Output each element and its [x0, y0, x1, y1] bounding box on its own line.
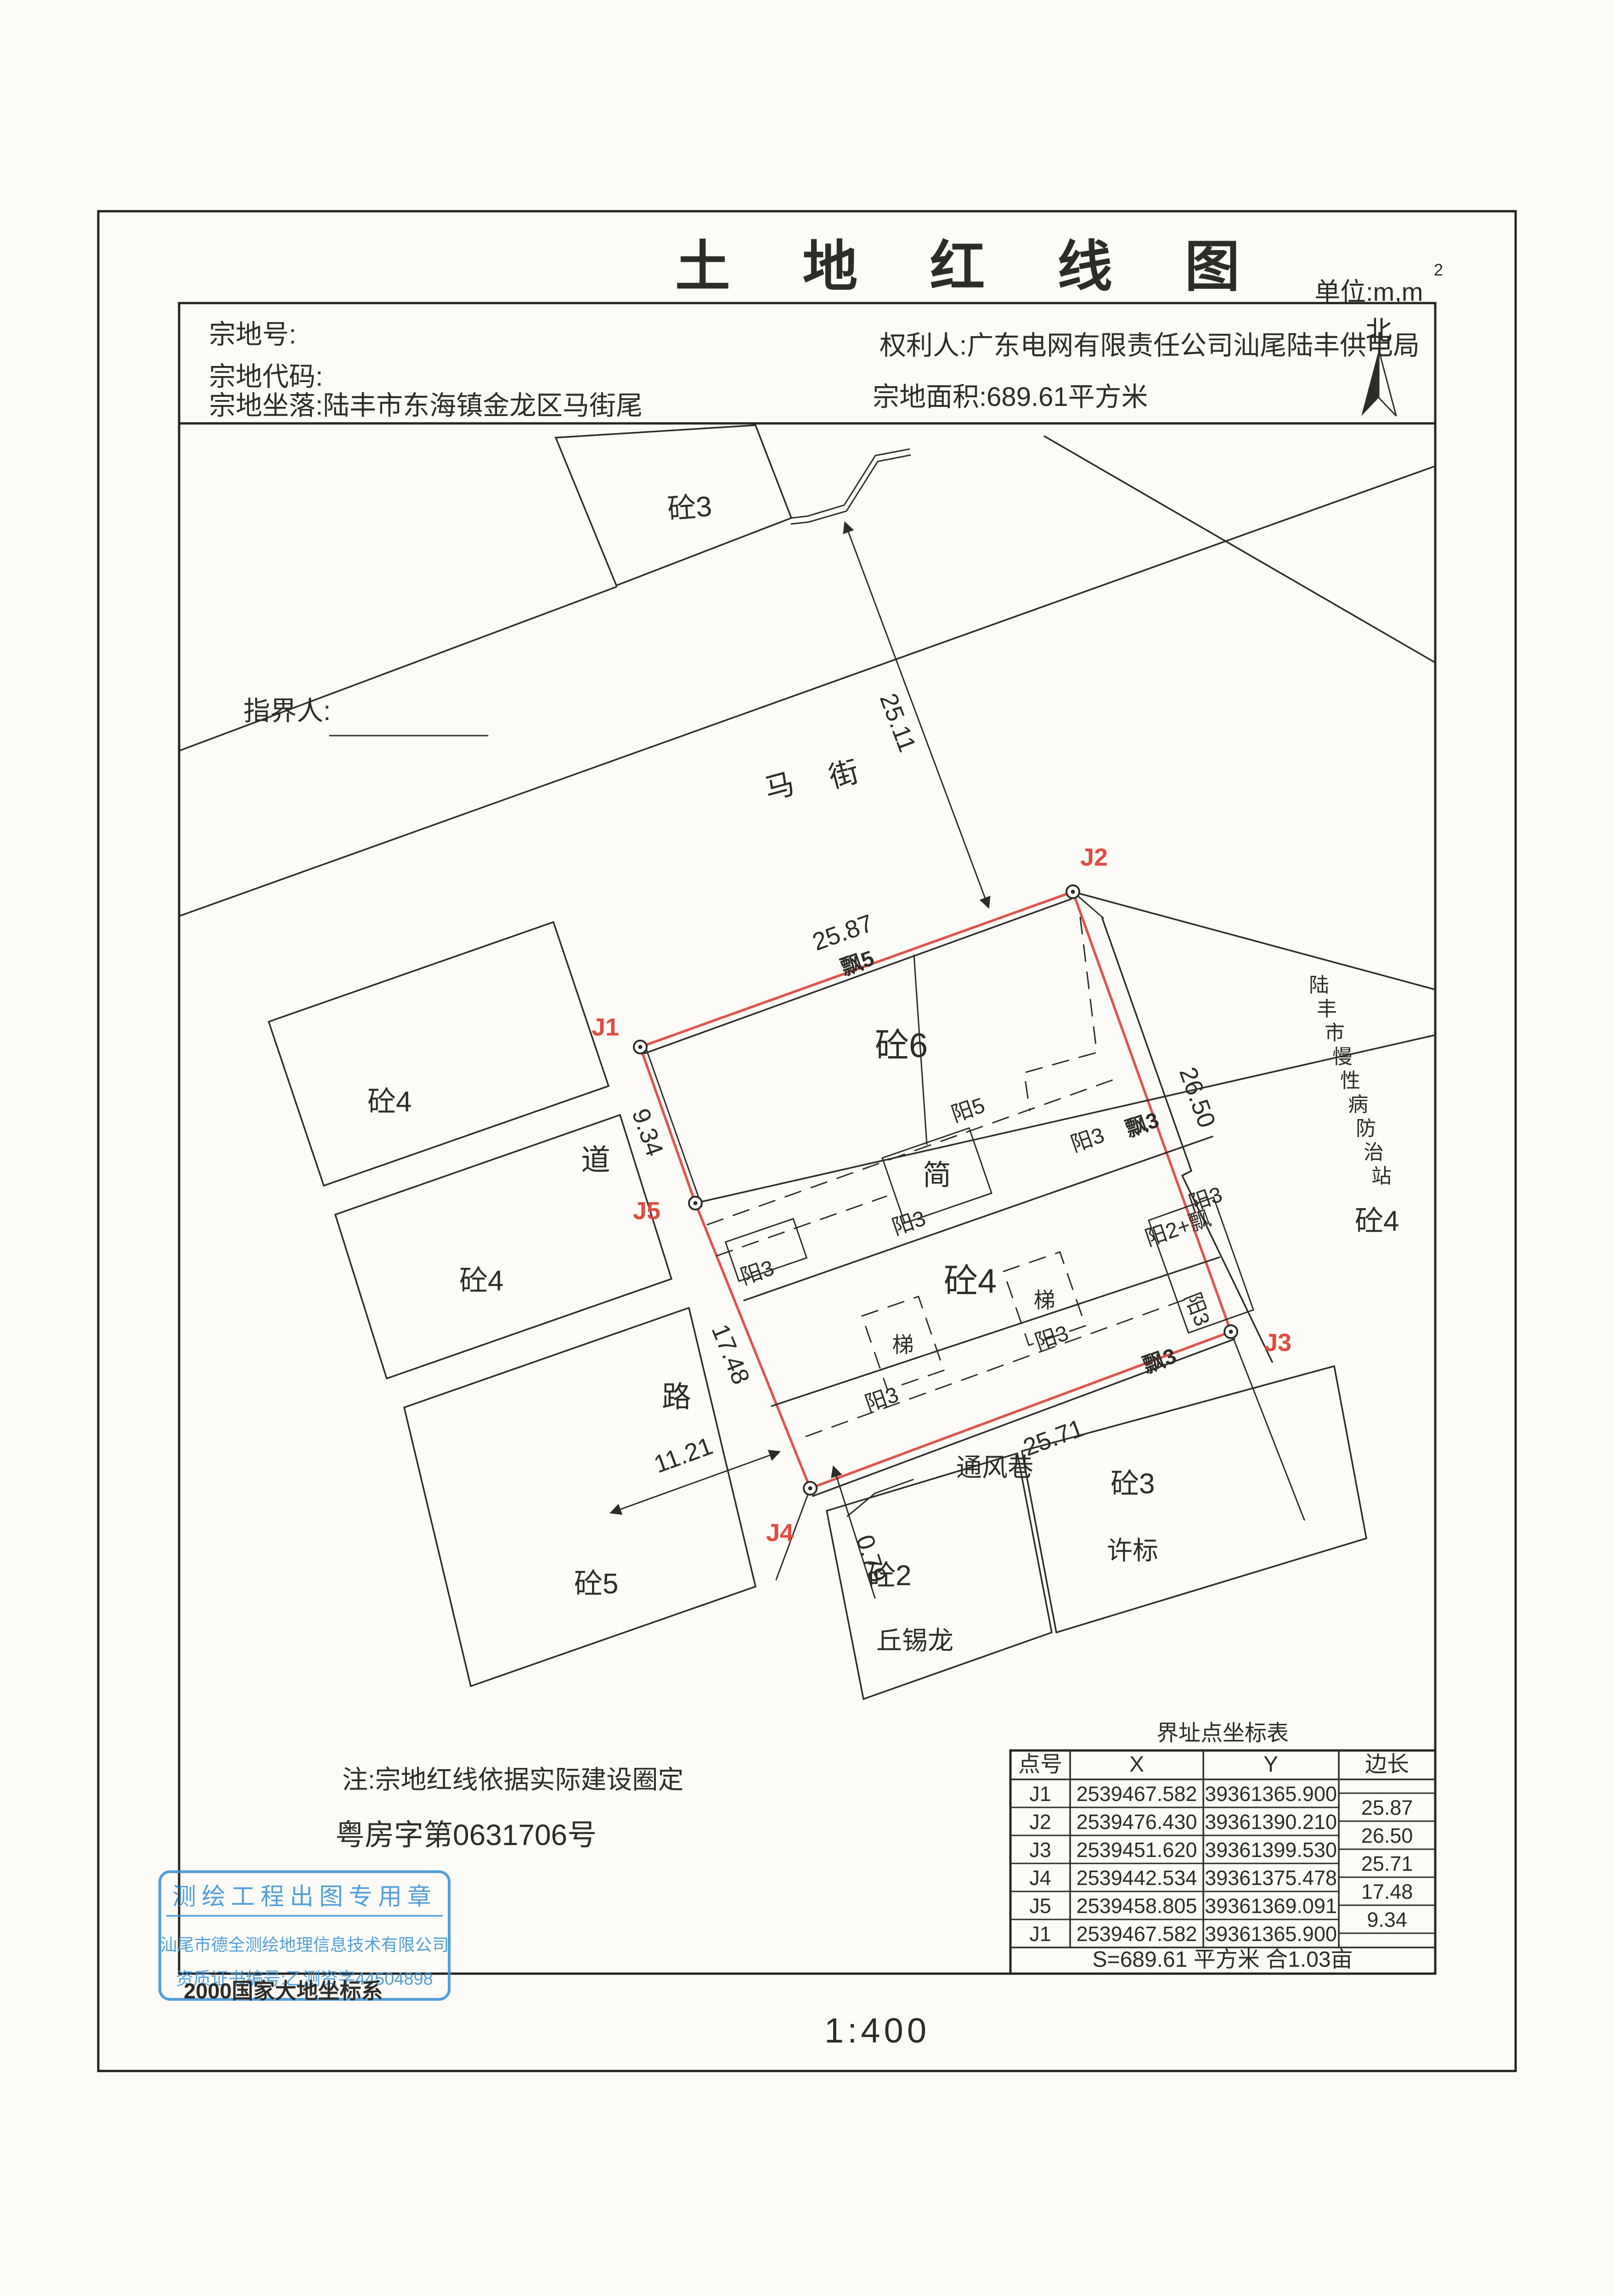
- building-left1-label: 砼4: [367, 1086, 412, 1118]
- edge-len-2: 25.71: [1361, 1852, 1413, 1875]
- building-mid-label: 砼4: [944, 1262, 997, 1300]
- stamp-purpose-text: 测绘工程出图专用章: [172, 1884, 437, 1910]
- station-name-char-4: 慢: [1332, 1046, 1353, 1068]
- road-char-lu: 路: [662, 1380, 691, 1413]
- unit-label: 单位:m,m: [1314, 277, 1423, 306]
- building-south1: [827, 1453, 1052, 1699]
- label-yang3-e: 阳3: [1067, 1122, 1107, 1156]
- col-header-y: Y: [1263, 1752, 1278, 1777]
- balcony-dashed-left: [716, 1196, 886, 1256]
- table-title: 界址点坐标表: [1156, 1721, 1289, 1745]
- parcel-location-label: 宗地坐落:陆丰市东海镇金龙区马街尾: [209, 391, 643, 421]
- building-south2-label: 砼3: [1111, 1468, 1155, 1500]
- cell-id-3: J4: [1029, 1866, 1051, 1890]
- label-yang3-a: 阳3: [889, 1205, 928, 1239]
- building-left3-label: 砼5: [574, 1568, 618, 1600]
- station-name-char-2: 丰: [1317, 998, 1337, 1020]
- label-yang3-d: 阳3: [1032, 1320, 1071, 1354]
- street-upper-edge: [179, 587, 616, 751]
- building-top-label: 砼3: [666, 490, 713, 525]
- owner-label: 权利人:广东电网有限责任公司汕尾陆丰供电局: [880, 331, 1420, 360]
- building-left2-label: 砼4: [459, 1265, 503, 1297]
- dim-j5-j1: 9.34: [626, 1105, 669, 1159]
- building-right-label: 砼4: [1355, 1205, 1399, 1237]
- label-piao3-b: 飘3: [1139, 1343, 1179, 1378]
- cell-y-5: 39361365.900: [1205, 1922, 1337, 1946]
- map-sheet-svg: 土 地 红 线 图 单位:m,m 2 宗地号: 宗地代码: 宗地坐落:陆丰市东海…: [0, 0, 1613, 2296]
- unit-superscript: 2: [1434, 260, 1443, 279]
- station-name-char-5: 性: [1340, 1069, 1360, 1092]
- col-header-len: 边长: [1365, 1752, 1409, 1777]
- north-label: 北: [1365, 316, 1392, 346]
- boundary-pointer-label: 指界人:: [243, 696, 331, 726]
- building-left3: [404, 1308, 756, 1686]
- building-south2: [1022, 1366, 1366, 1632]
- point-label-j2: J2: [1080, 844, 1108, 871]
- label-ti-left: 梯: [892, 1333, 914, 1357]
- cross-street-edge: [1044, 436, 1435, 663]
- station-name-char-7: 防: [1356, 1117, 1376, 1140]
- station-name-char-1: 陆: [1309, 974, 1329, 996]
- alley-leader-line: [847, 1480, 913, 1516]
- dim-j2-j3: 26.50: [1174, 1064, 1221, 1131]
- station-name-char-8: 治: [1364, 1141, 1384, 1164]
- main-building-south-wall: [695, 1035, 1435, 1203]
- dim-road-width: 11.21: [650, 1432, 716, 1479]
- cell-x-0: 2539467.582: [1077, 1782, 1197, 1806]
- cell-y-4: 39361369.091: [1205, 1894, 1337, 1918]
- neighbour-north-boundary: [1073, 892, 1435, 990]
- edge-len-1: 26.50: [1361, 1824, 1413, 1847]
- point-label-j1: J1: [592, 1013, 619, 1041]
- label-jian: 简: [923, 1159, 951, 1191]
- label-yang2-piao: 阳2+飘: [1142, 1205, 1214, 1250]
- station-name-char-6: 病: [1348, 1093, 1368, 1116]
- coordinate-table: 点号 X Y 边长 J1 2539467.582 39361365.900 J2…: [1010, 1750, 1435, 1974]
- sheet-title: 土 地 红 线 图: [675, 236, 1268, 298]
- building-left2: [335, 1115, 671, 1379]
- dim-alley-width: 0.79: [851, 1531, 892, 1586]
- parcel-area-label: 宗地面积:689.61平方米: [873, 382, 1148, 412]
- parcel-no-label: 宗地号:: [209, 320, 296, 349]
- cell-x-5: 2539467.582: [1077, 1922, 1197, 1946]
- label-yang3-b: 阳3: [737, 1255, 777, 1289]
- building-main-label: 砼6: [875, 1026, 928, 1064]
- scanned-cadastral-redline-map: 土 地 红 线 图 单位:m,m 2 宗地号: 宗地代码: 宗地坐落:陆丰市东海…: [0, 0, 1613, 2296]
- label-piao3-a: 飘3: [1122, 1107, 1162, 1141]
- note-redline-basis: 注:宗地红线依据实际建设圈定: [342, 1765, 684, 1794]
- point-label-j4: J4: [766, 1519, 794, 1547]
- road-char-dao: 道: [581, 1143, 610, 1176]
- col-header-x: X: [1129, 1752, 1144, 1777]
- point-label-j3: J3: [1264, 1329, 1292, 1356]
- station-name-char-3: 市: [1325, 1022, 1345, 1044]
- building-south2-owner: 许标: [1107, 1536, 1158, 1565]
- station-name-char-9: 站: [1371, 1165, 1392, 1187]
- label-yang5: 阳5: [948, 1092, 987, 1126]
- cell-id-0: J1: [1029, 1782, 1051, 1806]
- table-area-footer: S=689.61 平方米 合1.03亩: [1093, 1947, 1353, 1972]
- street-name-ma: 马: [761, 766, 798, 806]
- edge-len-4: 9.34: [1367, 1908, 1407, 1931]
- col-header-id: 点号: [1018, 1752, 1062, 1777]
- datum-label: 2000国家大地坐标系: [184, 1979, 383, 2003]
- building-south1-owner: 丘锡龙: [876, 1626, 953, 1655]
- street-lower-edge: [179, 466, 1435, 916]
- cell-id-2: J3: [1029, 1838, 1051, 1862]
- cell-x-4: 2539458.805: [1077, 1894, 1197, 1918]
- cell-x-2: 2539451.620: [1077, 1838, 1197, 1862]
- point-label-j5: J5: [633, 1197, 660, 1225]
- label-yang3-c: 阳3: [862, 1382, 901, 1416]
- cell-y-0: 39361365.900: [1205, 1782, 1337, 1806]
- street-name-jie: 街: [825, 754, 862, 794]
- edge-len-0: 25.87: [1361, 1796, 1413, 1819]
- label-ti-right: 梯: [1034, 1288, 1055, 1312]
- cell-id-1: J2: [1029, 1810, 1051, 1834]
- cell-x-3: 2539442.534: [1077, 1866, 1197, 1890]
- cell-x-1: 2539476.430: [1077, 1810, 1197, 1834]
- note-certificate-no: 粤房字第0631706号: [335, 1818, 597, 1851]
- map-scale: 1:400: [824, 2011, 930, 2050]
- cell-y-1: 39361390.210: [1205, 1810, 1337, 1834]
- stamp-company-text: 汕尾市德全测绘地理信息技术有限公司: [160, 1936, 449, 1954]
- label-piao5: 飘5: [837, 945, 877, 980]
- cell-id-5: J1: [1029, 1922, 1051, 1946]
- dim-street-depth: 25.11: [874, 690, 921, 756]
- edge-len-3: 17.48: [1361, 1880, 1413, 1903]
- southeast-lane-edge: [1234, 1339, 1304, 1520]
- alley-label: 通风巷: [956, 1453, 1033, 1482]
- dim-line-street-depth: [845, 523, 988, 907]
- east-step-dashed: [1024, 917, 1097, 1110]
- parcel-code-label: 宗地代码:: [209, 362, 323, 392]
- zigzag-wall-2: [791, 455, 910, 524]
- building-left1: [269, 922, 609, 1186]
- cell-y-3: 39361375.478: [1205, 1866, 1337, 1890]
- cell-id-4: J5: [1029, 1894, 1051, 1918]
- balcony5-dashed-line: [707, 1080, 1114, 1225]
- cell-y-2: 39361399.530: [1205, 1838, 1337, 1862]
